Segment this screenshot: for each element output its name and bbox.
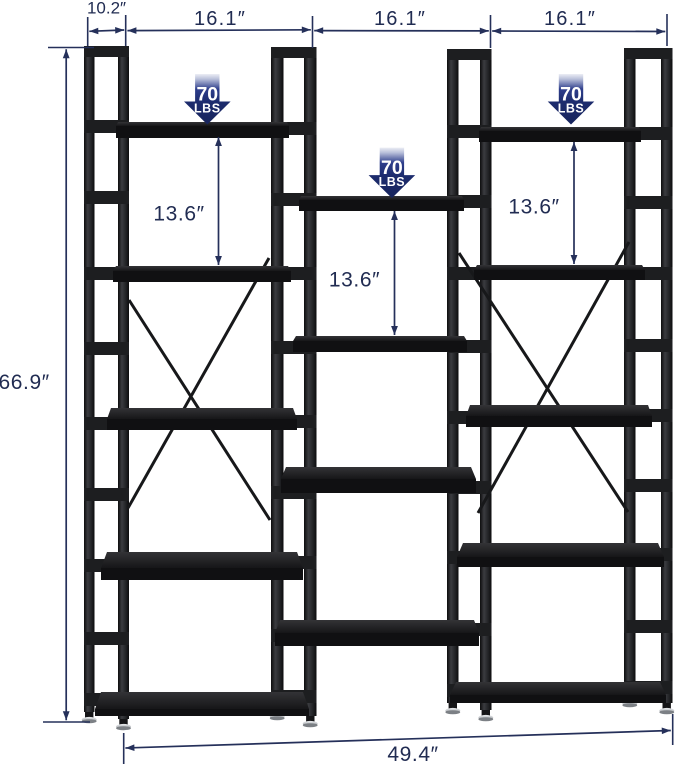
svg-text:49.4″: 49.4″ xyxy=(387,743,438,766)
svg-text:16.1″: 16.1″ xyxy=(544,8,596,30)
svg-text:66.9″: 66.9″ xyxy=(0,371,50,394)
svg-text:10.2″: 10.2″ xyxy=(87,0,126,18)
svg-text:13.6″: 13.6″ xyxy=(508,196,559,219)
svg-text:16.1″: 16.1″ xyxy=(374,8,426,30)
svg-text:LBS: LBS xyxy=(558,102,585,116)
svg-text:13.6″: 13.6″ xyxy=(153,203,204,226)
svg-text:LBS: LBS xyxy=(379,175,406,189)
svg-text:16.1″: 16.1″ xyxy=(194,8,246,30)
svg-text:LBS: LBS xyxy=(194,102,221,116)
svg-text:13.6″: 13.6″ xyxy=(329,269,380,292)
